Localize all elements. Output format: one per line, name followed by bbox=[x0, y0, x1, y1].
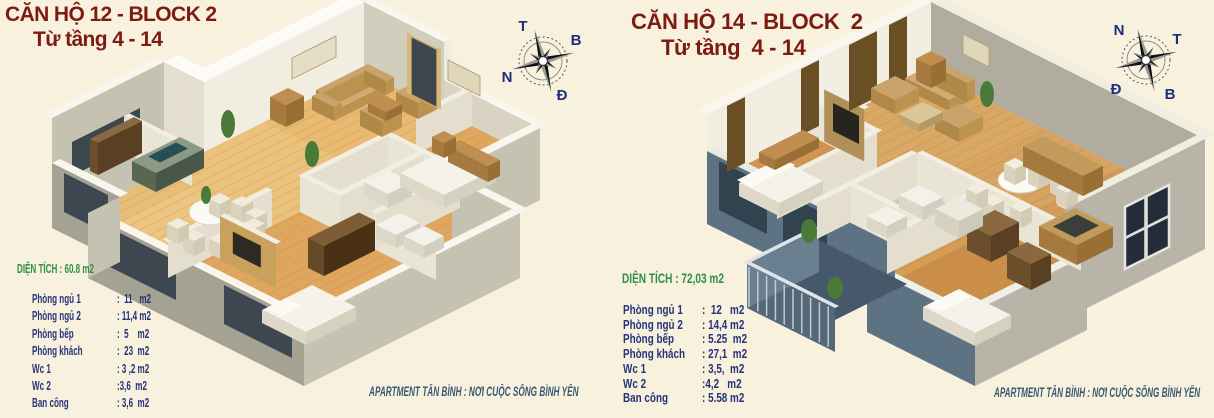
svg-text:T: T bbox=[518, 18, 527, 35]
svg-text:B: B bbox=[571, 32, 582, 49]
svg-text:T: T bbox=[1172, 31, 1181, 48]
svg-text:N: N bbox=[502, 69, 513, 86]
svg-text:N: N bbox=[1114, 22, 1125, 39]
svg-text:B: B bbox=[1165, 86, 1176, 103]
svg-text:Đ: Đ bbox=[557, 87, 568, 104]
svg-text:Đ: Đ bbox=[1111, 81, 1122, 98]
